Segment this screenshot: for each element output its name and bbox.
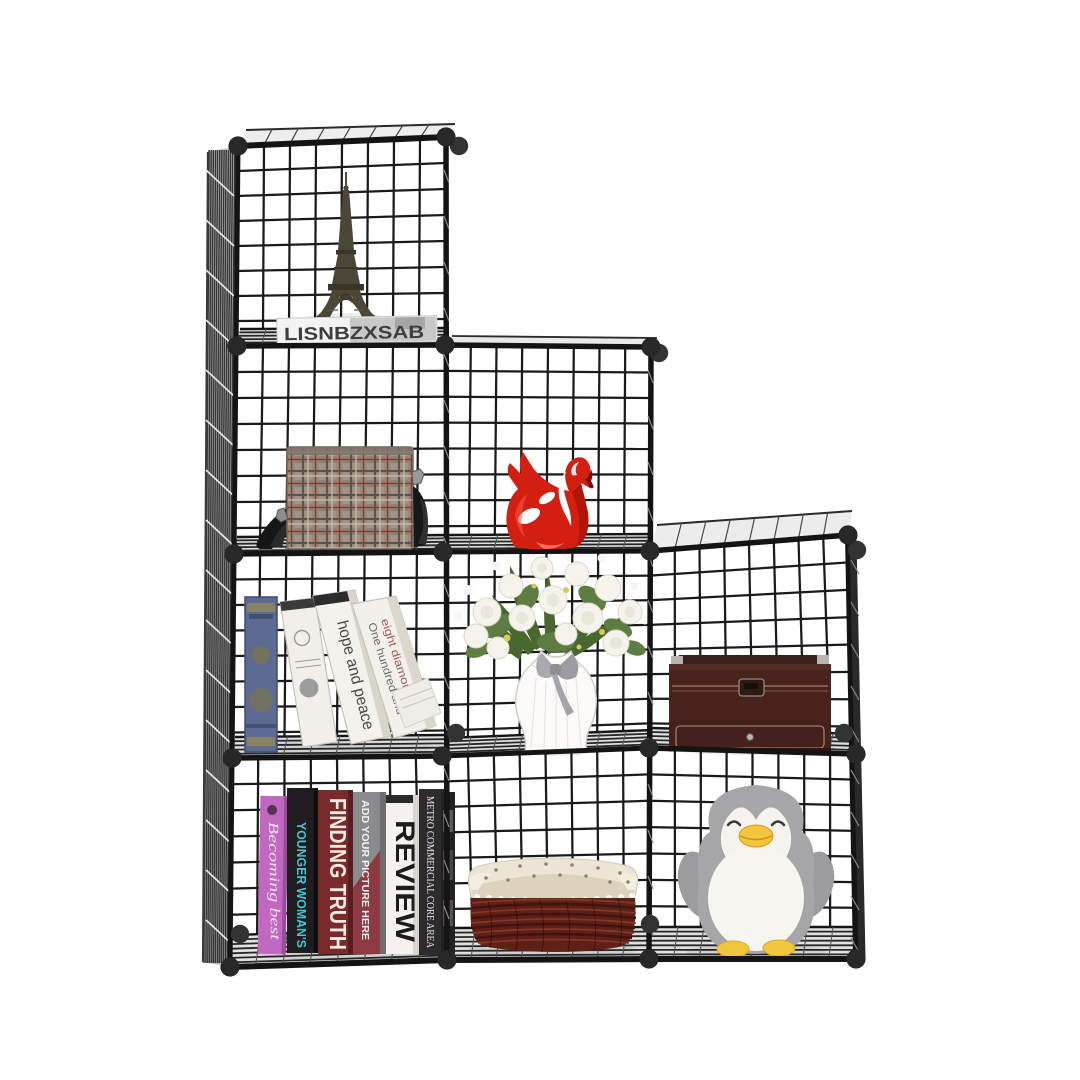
svg-text:YOUNGER WOMAN'S: YOUNGER WOMAN'S xyxy=(294,822,309,948)
svg-text:REVIEW: REVIEW xyxy=(390,820,420,943)
svg-text:LISNBZXSAB: LISNBZXSAB xyxy=(284,322,424,344)
svg-text:METRO COMMERCIAL CORE AREA: METRO COMMERCIAL CORE AREA xyxy=(424,796,436,948)
svg-text:Becoming best: Becoming best xyxy=(265,822,282,942)
svg-text:ADD YOUR PICTURE HERE: ADD YOUR PICTURE HERE xyxy=(359,800,370,940)
svg-text:FINDING TRUTH: FINDING TRUTH xyxy=(325,798,351,950)
